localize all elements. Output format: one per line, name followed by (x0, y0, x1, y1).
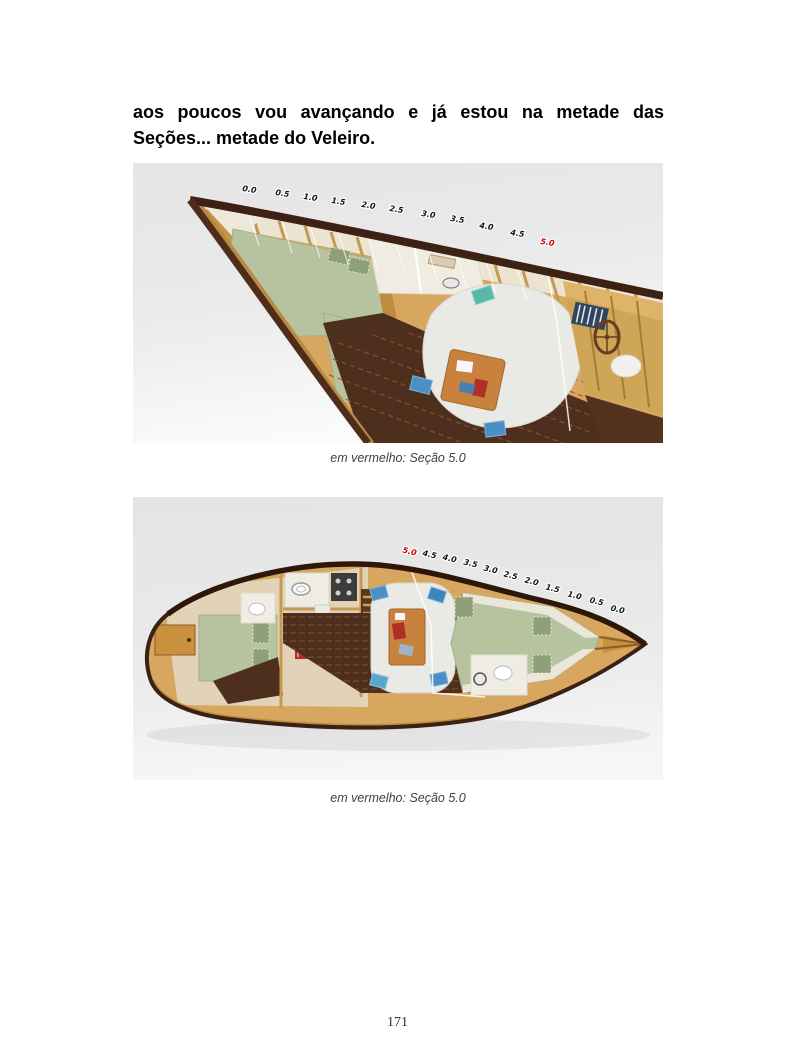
washbasin (443, 278, 459, 288)
top-view-render: 5.0 4.5 4.0 3.5 3.0 2.5 2.0 1.5 1.0 0.5 … (133, 497, 663, 780)
figure-top-view: 5.0 4.5 4.0 3.5 3.0 2.5 2.0 1.5 1.0 0.5 … (133, 497, 663, 780)
document-page: aos poucos vou avançando e já estou na m… (0, 0, 795, 1063)
salon-table (389, 609, 425, 665)
stove (331, 573, 357, 601)
galley-sink (292, 583, 310, 595)
page-number: 171 (0, 1015, 795, 1031)
figure2-caption: em vermelho: Seção 5.0 (133, 791, 663, 805)
porthole (474, 673, 486, 685)
perspective-render: 0.0 0.5 1.0 1.5 2.0 2.5 3.0 3.5 4.0 4.5 … (133, 163, 663, 443)
salon-table (440, 349, 506, 412)
helm-chair (611, 355, 641, 377)
paragraph-line-2: Seções... metade do Veleiro. (133, 125, 664, 151)
toilet (249, 603, 265, 615)
paragraph-line-1: aos poucos vou avançando e já estou na m… (133, 99, 664, 125)
figure1-caption: em vermelho: Seção 5.0 (133, 451, 663, 465)
steering-wheel (595, 321, 619, 353)
toilet (494, 666, 512, 680)
figure-perspective-view: 0.0 0.5 1.0 1.5 2.0 2.5 3.0 3.5 4.0 4.5 … (133, 163, 663, 443)
intro-paragraph: aos poucos vou avançando e já estou na m… (133, 99, 664, 151)
